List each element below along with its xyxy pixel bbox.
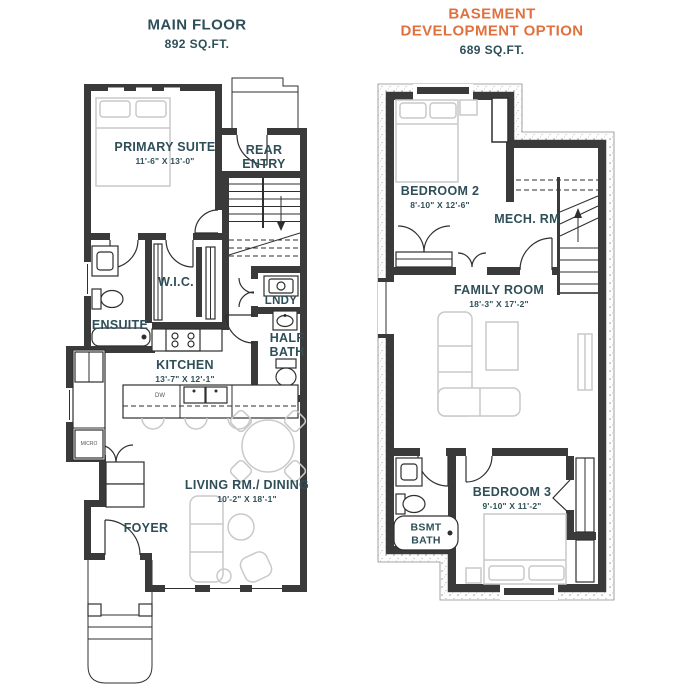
ensuite-vanity-sink: [92, 246, 118, 276]
appliance-label-dishwasher: DW: [155, 393, 165, 399]
room-label-rear-entry: REAR ENTRY: [232, 143, 296, 171]
bedroom3-closet: [576, 458, 594, 582]
family-room-furniture: [438, 312, 592, 416]
room-label-laundry: LNDY: [265, 294, 298, 308]
basement-stairs: [516, 177, 598, 295]
main-floor-area: 892 SQ.FT.: [165, 37, 230, 51]
basement-title-line1: BASEMENT: [448, 6, 535, 23]
room-label-primary-suite: PRIMARY SUITE: [114, 140, 215, 154]
main-floor-title: MAIN FLOOR: [148, 17, 247, 34]
room-label-living-dining: LIVING RM./ DINING: [185, 478, 309, 492]
room-dims-primary-suite: 11'-6" X 13'-0": [135, 156, 194, 166]
room-label-wic: W.I.C.: [158, 275, 194, 289]
duct-chase: [492, 98, 508, 142]
room-dims-kitchen: 13'-7" X 12'-1": [155, 374, 215, 384]
sofa-symbol: [190, 496, 223, 582]
main-floor-stairs: [229, 178, 300, 256]
room-dims-living-dining: 10'-2" X 18'-1": [217, 494, 277, 504]
stairs-direction-arrow: [574, 208, 582, 218]
room-label-bedroom2: BEDROOM 2: [401, 184, 479, 198]
coffee-table-symbol: [228, 514, 254, 540]
room-label-kitchen: KITCHEN: [156, 358, 214, 372]
room-label-family-room: FAMILY ROOM: [454, 283, 544, 297]
island-stool: [142, 418, 164, 429]
front-porch-steps: [88, 560, 152, 683]
room-label-half-bath: HALF BATH: [263, 331, 311, 359]
kitchen-island: [123, 385, 298, 418]
bifold-closet-door: [553, 480, 570, 514]
room-dims-family-room: 18'-3" X 17'-2": [469, 299, 529, 309]
stairs-direction-arrow: [277, 222, 285, 231]
room-dims-bedroom2: 8'-10" X 12'-6": [410, 200, 470, 210]
foyer-closet: [106, 462, 144, 507]
room-label-bsmt-bath: BSMT BATH: [403, 522, 449, 547]
room-label-bedroom3: BEDROOM 3: [473, 485, 551, 499]
basement-area: 689 SQ.FT.: [460, 43, 525, 57]
accent-chair-symbol: [238, 549, 274, 584]
floorplan-drawing: [0, 0, 684, 685]
half-bath-toilet: [276, 359, 296, 368]
room-label-ensuite: ENSUITE: [92, 318, 148, 332]
room-label-mech-rm: MECH. RM: [494, 212, 560, 226]
island-stool: [185, 418, 207, 429]
bedroom3-bed-symbol: [466, 514, 566, 584]
rear-deck-outline: [232, 78, 298, 128]
appliance-label-microwave: MICRO: [81, 441, 98, 447]
room-label-foyer: FOYER: [124, 521, 169, 535]
room-dims-bedroom3: 9'-10" X 11'-2": [482, 501, 541, 511]
dining-table-symbol: [229, 409, 307, 483]
bedroom2-bed-symbol: [396, 100, 477, 182]
floorplan-page: MAIN FLOOR 892 SQ.FT. BASEMENT DEVELOPME…: [0, 0, 684, 685]
living-room-furniture: [190, 496, 274, 585]
bsmt-bath-sink: [396, 458, 422, 486]
coffee-table-symbol: [486, 322, 518, 370]
bedroom2-closet: [396, 252, 452, 267]
basement-title-line2: DEVELOPMENT OPTION: [400, 23, 583, 40]
ensuite-toilet: [92, 289, 101, 309]
laundry-washer-dryer: [264, 276, 298, 296]
